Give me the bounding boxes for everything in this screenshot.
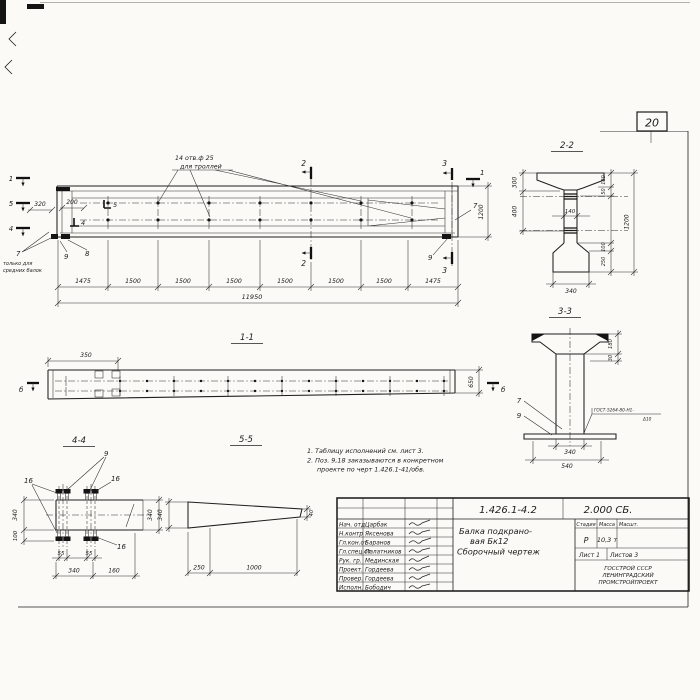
- elevation-dim-chain: 1475 1500 1500 1500 1500 1500 1500 1475 …: [55, 240, 461, 307]
- dim-340-right: 340: [147, 509, 154, 521]
- product-title-line2: вая Бк12: [470, 536, 508, 546]
- section-4-4-title: 4-4: [72, 436, 86, 446]
- cut-label-2-top: 2: [301, 159, 306, 168]
- pos-9: 9: [104, 450, 109, 458]
- doc-number: 1.426.1-4.2: [479, 505, 537, 516]
- dim-chain-5: 1500: [328, 278, 344, 285]
- dim-55a: 55: [58, 551, 65, 557]
- section-5-5: 5-5 340 250 1000 40: [157, 435, 315, 576]
- pos-16-left: 16: [24, 477, 33, 485]
- role-name: Бободич: [365, 586, 391, 592]
- holes-note-line2: для троллей: [179, 164, 222, 171]
- section-marks-2-3: 2 2 3 3 1: [301, 159, 484, 275]
- only-note-line1: только для: [3, 261, 32, 267]
- dim-320: 320: [34, 201, 46, 208]
- role-name: Палатников: [365, 550, 402, 556]
- role-label: Проект.: [339, 568, 363, 574]
- sheets-label: Листов 3: [609, 552, 638, 559]
- role-name: Баранов: [365, 541, 391, 547]
- dim-chain-2: 1500: [175, 278, 191, 285]
- dim-100: 100: [601, 242, 607, 252]
- bearing-pad: [442, 234, 451, 239]
- section-marks-left: 1 5 4: [9, 175, 30, 236]
- dim-chain-4: 1500: [277, 278, 293, 285]
- dim-540: 540: [561, 463, 573, 470]
- note-line2: 2. Поз. 9,18 заказываются в конкретном: [307, 457, 444, 465]
- cut-label-1-right: 1: [480, 169, 484, 177]
- role-name: Яксенова: [364, 532, 394, 538]
- dim-340: 340: [157, 509, 164, 521]
- dim-total: 11950: [242, 293, 263, 301]
- role-label: Нач. отд: [339, 523, 365, 529]
- section-4-4: 4-4 9 16 16 16 340 100 55 55 340 160 340: [12, 436, 163, 579]
- dim-340-bottom: 340: [565, 288, 577, 295]
- sheet-label: Лист 1: [578, 552, 600, 559]
- dim-340: 340: [564, 449, 576, 456]
- dim-340-bottom: 340: [68, 568, 80, 575]
- cut-label-5: 5: [9, 200, 14, 208]
- dim-140: 140: [565, 209, 576, 215]
- dim-1200-section: 1200: [624, 214, 631, 229]
- pos-16-bottom: 16: [117, 543, 126, 551]
- dim-180: 180: [601, 175, 607, 185]
- section-2-2-title: 2-2: [560, 141, 574, 151]
- note-line1: 1. Таблицу исполнений см. лист 3.: [307, 447, 424, 455]
- title-block: 1.426.1-4.2 2.000 СБ. Нач. отд Царбак Н.…: [337, 498, 689, 592]
- view-mark-b-right: б: [501, 386, 506, 394]
- section-3-3: 3-3 180 30 7 9 ГОСТ-5264-80-Н1- Δ10 340 …: [517, 307, 661, 470]
- dim-30: 30: [608, 354, 614, 361]
- page-number: 20: [645, 117, 659, 130]
- section-2-2: 2-2 300 400 140 180 50 100 250 1200 340: [512, 141, 639, 295]
- pos-9: 9: [517, 412, 522, 420]
- pos-7-left: 7: [16, 250, 21, 258]
- dim-200: 200: [66, 199, 78, 206]
- section-1-1-title: 1-1: [240, 333, 254, 343]
- role-name: Гордеева: [365, 577, 394, 583]
- col-stage-header: Стадия: [576, 522, 595, 528]
- weld-note-line2: Δ10: [642, 417, 652, 423]
- dim-180: 180: [608, 338, 614, 349]
- dim-650: 650: [468, 376, 475, 388]
- dim-340-left: 340: [12, 509, 19, 521]
- section-5-5-outline: [188, 502, 302, 528]
- beam-outline: [51, 186, 458, 239]
- signatures: [409, 520, 431, 588]
- pos-5: 5: [113, 201, 117, 209]
- weld-note-line1: ГОСТ-5264-80-Н1-: [594, 408, 634, 414]
- org-line1: ГОССТРОЙ СССР: [604, 565, 652, 572]
- doc-code: 2.000 СБ.: [584, 505, 633, 516]
- role-name: Мединская: [365, 559, 399, 565]
- section-3-3-title: 3-3: [558, 307, 572, 317]
- role-label: Рук. гр.: [339, 559, 362, 565]
- dim-1200-elevation: 1200: [478, 204, 485, 219]
- pos-7: 7: [517, 397, 522, 405]
- pos-9-left: 9: [64, 253, 69, 261]
- only-note-line2: средних балок: [3, 268, 42, 274]
- section-1-1-outline: [48, 370, 455, 399]
- role-label: Гл.кон.от: [339, 541, 368, 547]
- dim-1000: 1000: [246, 565, 261, 572]
- section-2-2-profile: [537, 173, 604, 272]
- role-label: Н.контр: [339, 532, 363, 538]
- col-mass-header: Масса: [599, 522, 615, 528]
- bearing-pad: [51, 234, 58, 239]
- scan-corner-mark: [27, 4, 44, 9]
- role-label: Исполн.: [339, 586, 363, 592]
- dim-160: 160: [108, 568, 120, 575]
- section-5-5-title: 5-5: [239, 435, 253, 445]
- mass-value: 10,3 т: [597, 536, 618, 544]
- drawing-canvas: 20 14 отв.ф 25 для троллей 1 5 4 320 200…: [0, 0, 700, 700]
- dim-250: 250: [601, 257, 607, 267]
- dim-50: 50: [601, 188, 607, 194]
- product-title-line1: Балка подкрано-: [459, 526, 532, 536]
- note-line3: проекте по черт 1.426.1-41/обв.: [317, 466, 425, 474]
- dim-250: 250: [193, 565, 205, 572]
- section-1-1: 1-1 350 650 б б: [19, 333, 506, 399]
- pos-4: 4: [81, 219, 85, 227]
- holes-note-line1: 14 отв.ф 25: [175, 155, 214, 162]
- dim-400: 400: [512, 206, 519, 218]
- pos-9-right: 9: [428, 254, 433, 262]
- role-name: Царбак: [365, 523, 388, 529]
- corner-chevron-icon: [9, 32, 16, 46]
- dim-55b: 55: [86, 551, 93, 557]
- pos-7-right: 7: [473, 202, 478, 210]
- dim-chain-7: 1475: [425, 278, 441, 285]
- view-mark-b-left: б: [19, 386, 24, 394]
- role-name: Гордеева: [365, 568, 394, 574]
- notes: 1. Таблицу исполнений см. лист 3. 2. Поз…: [307, 447, 444, 474]
- cut-label-3-top: 3: [442, 159, 447, 168]
- dim-40: 40: [309, 510, 315, 516]
- corner-chevron-icon: [5, 60, 12, 74]
- drawing-sheet: 20 14 отв.ф 25 для троллей 1 5 4 320 200…: [0, 0, 700, 700]
- pos-8: 8: [85, 250, 90, 258]
- dim-chain-1: 1500: [125, 278, 141, 285]
- elevation-view: 14 отв.ф 25 для троллей 1 5 4 320 200 5 …: [3, 155, 492, 307]
- dim-350: 350: [80, 352, 92, 359]
- cut-label-3-bottom: 3: [442, 266, 447, 275]
- dim-chain-6: 1500: [376, 278, 392, 285]
- scan-corner-mark: [0, 0, 6, 24]
- cut-label-1: 1: [9, 175, 13, 183]
- dim-chain-0: 1475: [75, 278, 91, 285]
- org-line2: ЛЕНИНГРАДСКИЙ: [601, 572, 654, 579]
- role-label: Провер.: [339, 577, 363, 583]
- col-scale-header: Масшт.: [619, 522, 638, 528]
- dim-100: 100: [13, 530, 19, 541]
- cut-label-4: 4: [9, 225, 13, 233]
- dim-300: 300: [512, 177, 519, 189]
- product-title-line3: Сборочный чертеж: [457, 547, 540, 557]
- pos-16-right: 16: [111, 475, 120, 483]
- title-block-roles: Нач. отд Царбак Н.контр Яксенова Гл.кон.…: [339, 520, 431, 592]
- cut-label-2-bottom: 2: [301, 259, 306, 268]
- stage-value: Р: [584, 536, 589, 545]
- bearing-pad: [61, 234, 70, 239]
- dim-chain-3: 1500: [226, 278, 242, 285]
- org-line3: ПРОМСТРОЙПРОЕКТ: [599, 579, 659, 586]
